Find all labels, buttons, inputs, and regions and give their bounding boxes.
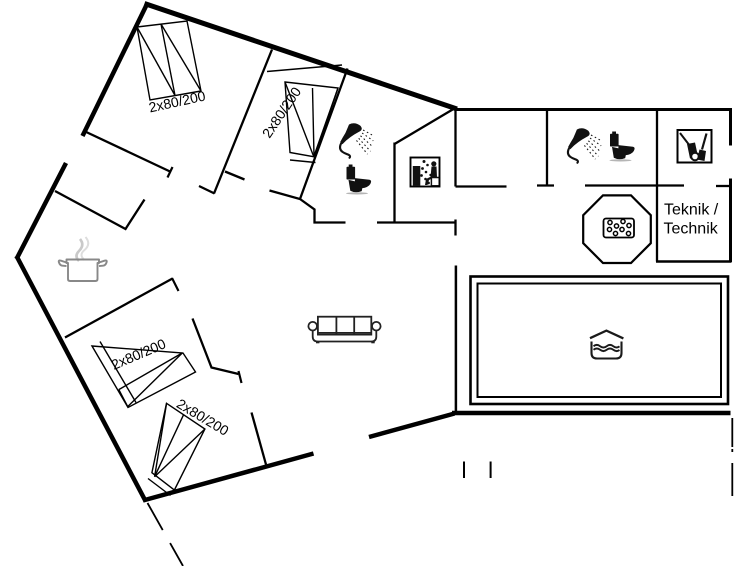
- svg-text:Teknik /: Teknik /: [664, 202, 719, 219]
- svg-text:Technik: Technik: [664, 221, 719, 238]
